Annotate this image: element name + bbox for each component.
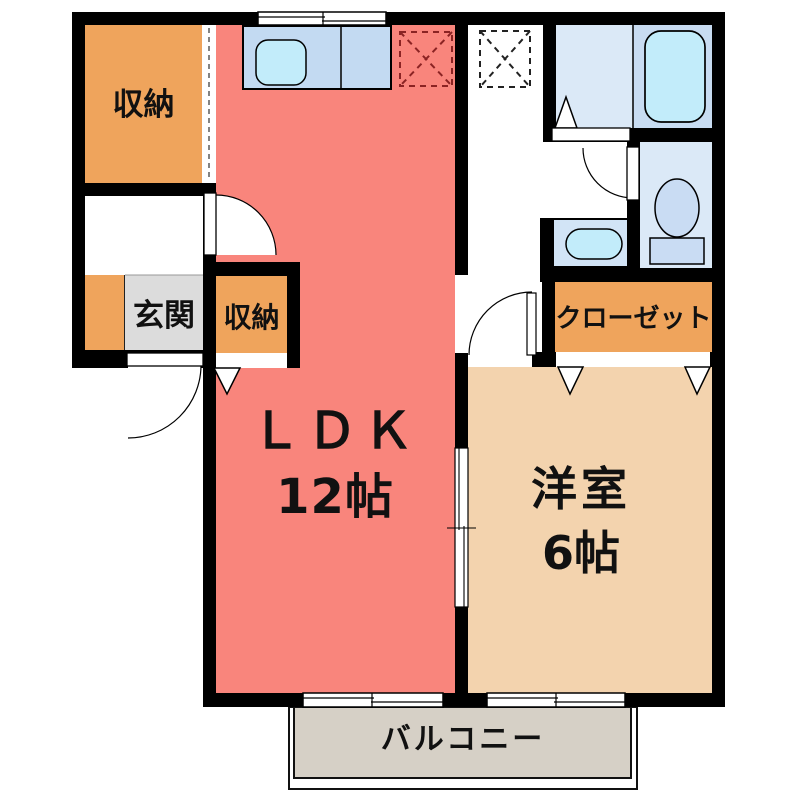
floorplan: 収納 玄関 収納 ＬＤＫ 12帖 洋室 6帖 クローゼット バルコニー bbox=[0, 0, 800, 800]
label-storage-top: 収納 bbox=[85, 88, 202, 122]
wall-basin-left bbox=[540, 218, 552, 268]
wall-bath-left bbox=[543, 25, 556, 128]
shoe-cabinet bbox=[85, 275, 125, 353]
bathtub-zone bbox=[633, 25, 712, 128]
wall-storage1-bottom bbox=[72, 183, 216, 196]
wall-ldk-western bbox=[455, 353, 468, 693]
label-western-name: 洋室 bbox=[468, 464, 694, 515]
wall-toilet-left bbox=[627, 142, 640, 268]
label-storage-ldk: 収納 bbox=[216, 303, 287, 334]
wall-closet-left bbox=[542, 282, 555, 352]
label-balcony: バルコニー bbox=[294, 723, 632, 756]
label-western-size: 6帖 bbox=[468, 528, 694, 579]
wall-above-closet bbox=[540, 268, 725, 282]
hallway bbox=[468, 25, 543, 353]
wall-storage2-top bbox=[203, 262, 300, 276]
wall-hall-upper bbox=[455, 25, 468, 275]
storage2-threshold bbox=[216, 353, 287, 368]
washbasin-unit bbox=[552, 218, 630, 268]
label-entrance: 玄関 bbox=[125, 299, 203, 333]
room-entry-hall bbox=[85, 196, 203, 275]
label-ldk-size: 12帖 bbox=[225, 471, 445, 524]
room-toilet bbox=[640, 142, 712, 268]
label-western: 洋室 6帖 bbox=[468, 464, 694, 578]
western-doorway bbox=[468, 352, 532, 367]
label-ldk-name: ＬＤＫ bbox=[225, 404, 445, 459]
ldk-hall-opening bbox=[455, 275, 468, 353]
entrance-door-swing bbox=[128, 365, 201, 438]
label-ldk: ＬＤＫ 12帖 bbox=[225, 404, 445, 524]
wall-under-bath bbox=[543, 128, 725, 142]
kitchen-counter bbox=[242, 25, 392, 90]
wall-entrance-bottom bbox=[72, 350, 216, 368]
label-closet: クローゼット bbox=[555, 305, 712, 334]
storage1-doorway bbox=[202, 25, 216, 183]
wall-storage2-right bbox=[287, 262, 300, 368]
wall-top bbox=[72, 12, 725, 25]
entrance-door-arc bbox=[128, 365, 201, 438]
washroom bbox=[543, 142, 627, 218]
bathroom bbox=[556, 25, 633, 128]
wall-bottom bbox=[203, 693, 725, 707]
closet-threshold bbox=[556, 352, 710, 367]
